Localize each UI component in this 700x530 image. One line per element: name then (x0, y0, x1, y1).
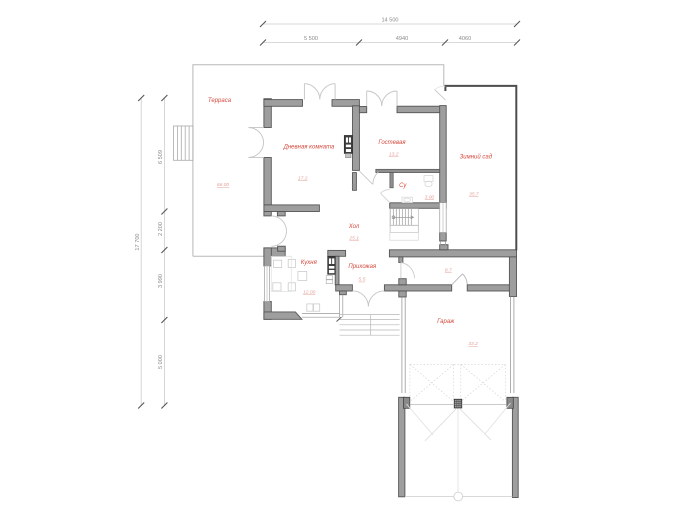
svg-text:14 500: 14 500 (381, 18, 398, 24)
svg-text:Хол: Хол (348, 224, 360, 230)
svg-text:8.7: 8.7 (445, 267, 452, 273)
svg-text:4940: 4940 (396, 36, 408, 42)
svg-text:6 509: 6 509 (158, 150, 164, 164)
svg-text:Прихожая: Прихожая (348, 264, 377, 270)
svg-text:35.7: 35.7 (469, 192, 479, 198)
svg-text:25.1: 25.1 (348, 236, 359, 242)
svg-text:3 990: 3 990 (158, 274, 164, 288)
svg-text:Су: Су (399, 183, 407, 189)
svg-text:33.2: 33.2 (468, 341, 478, 347)
svg-text:Зимний сад: Зимний сад (460, 154, 493, 161)
svg-text:5 000: 5 000 (158, 355, 164, 369)
svg-text:Терраса: Терраса (208, 98, 232, 104)
svg-text:Дневная комната: Дневная комната (283, 145, 335, 151)
svg-text:17 700: 17 700 (135, 233, 141, 250)
svg-text:13.2: 13.2 (389, 152, 399, 158)
svg-text:5.5: 5.5 (358, 277, 365, 283)
svg-text:4060: 4060 (459, 36, 471, 42)
svg-text:Гараж: Гараж (437, 319, 455, 325)
svg-text:17.2: 17.2 (298, 176, 308, 182)
svg-text:5 500: 5 500 (304, 36, 318, 42)
svg-text:66.00: 66.00 (217, 182, 230, 188)
svg-text:12.00: 12.00 (303, 289, 316, 295)
svg-text:Гостевая: Гостевая (378, 140, 406, 146)
svg-text:2 200: 2 200 (158, 222, 164, 236)
svg-text:Кухня: Кухня (301, 260, 318, 266)
svg-text:3.00: 3.00 (425, 194, 435, 200)
